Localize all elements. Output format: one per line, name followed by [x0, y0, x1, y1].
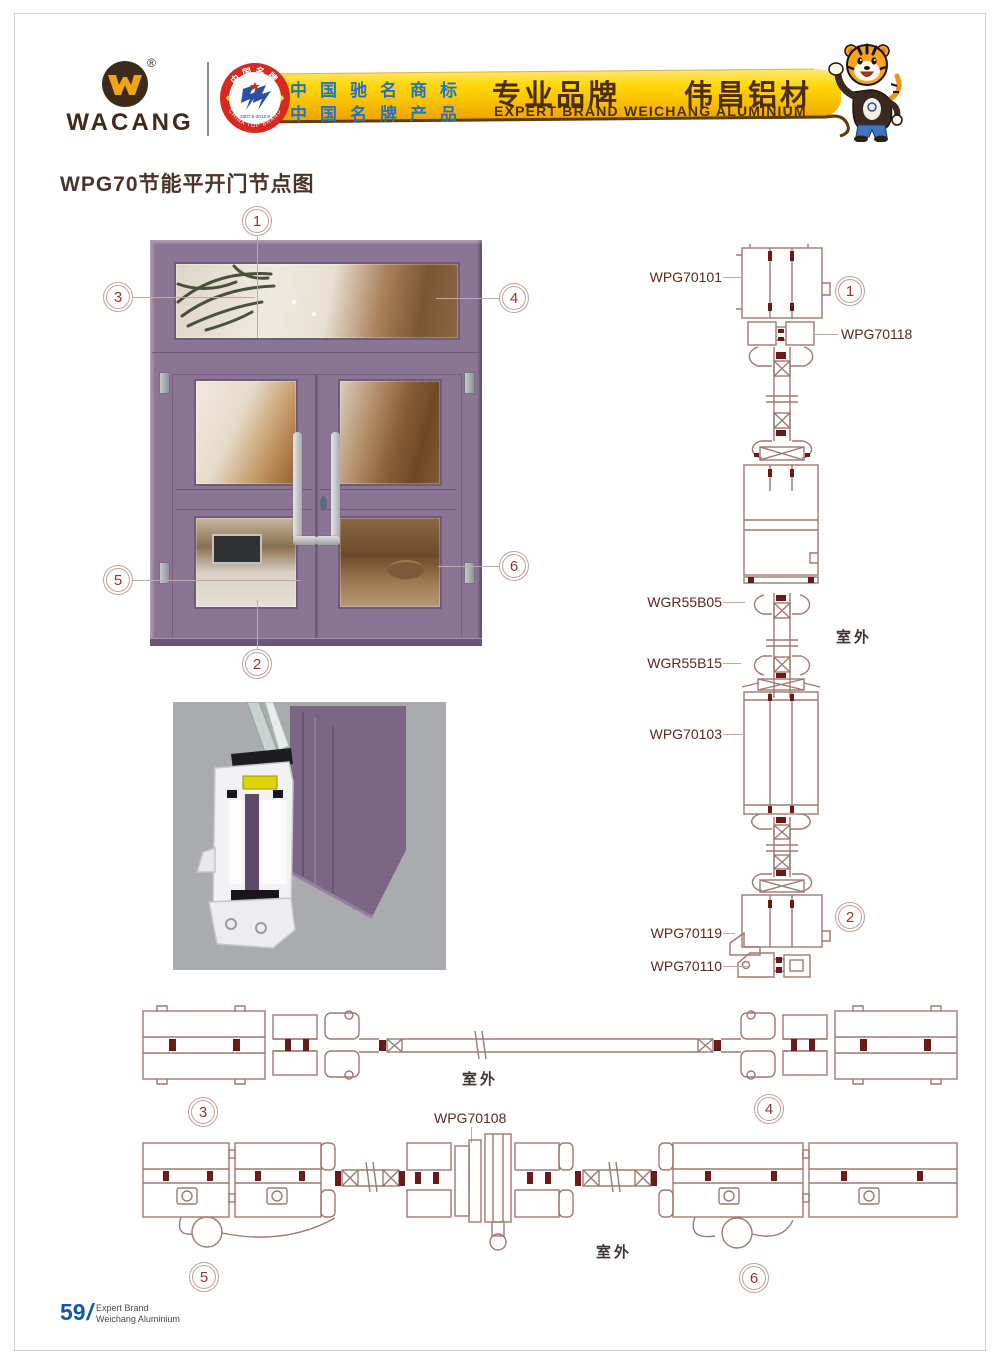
- china-top-brand-badge-icon: 中国名牌 CHINA TOP BRAND 2007.9-2012.9: [219, 62, 291, 134]
- profile-3d-render-drawing: [173, 702, 446, 970]
- label-wgr55b15: WGR55B15: [640, 655, 722, 671]
- callout-4-number: 4: [502, 286, 526, 310]
- callout-6: 6: [499, 551, 529, 581]
- section-callout-4-number: 4: [757, 1097, 781, 1121]
- glass-pane-upper-right: [338, 379, 442, 486]
- registered-mark: ®: [147, 56, 156, 70]
- section-callout-6: 6: [739, 1263, 769, 1293]
- outdoor-label-vertical: 室外: [836, 626, 872, 647]
- door-sill: [150, 638, 482, 646]
- label-wpg70103: WPG70103: [640, 726, 722, 742]
- transom-groove: [152, 352, 480, 353]
- leader-wgr55b15: [723, 663, 741, 664]
- callout-5-number: 5: [106, 568, 130, 592]
- midrail-groove-right: [320, 489, 456, 490]
- outdoor-label-row1: 室外: [462, 1068, 498, 1089]
- door-handle-left-grip: [293, 536, 317, 545]
- page-number-slash: /: [87, 1301, 93, 1323]
- leader-wpg70101: [723, 277, 741, 278]
- callout-1: 1: [242, 206, 272, 236]
- leader-wpg70110: [723, 966, 748, 967]
- label-wpg70110: WPG70110: [640, 958, 722, 974]
- horizontal-section-top-drawing: [135, 1003, 965, 1103]
- midrail-groove-left2: [176, 509, 312, 510]
- banner-cn-line2: 中国名牌产品: [290, 100, 470, 125]
- hinge-top-right: [464, 372, 475, 394]
- palm-leaves-icon: [176, 264, 326, 334]
- section-callout-2-number: 2: [838, 905, 862, 929]
- profile-3d-render: [173, 702, 446, 970]
- leader-wpg70118: [813, 334, 838, 335]
- wacang-logo-icon: [100, 58, 152, 110]
- label-wpg70101: WPG70101: [640, 269, 722, 285]
- leader-line-6: [438, 566, 499, 567]
- leader-wgr55b05: [723, 602, 745, 603]
- catalog-page: ® WACANG 中国名牌 CHINA TOP BRAND 2007.9-201…: [0, 0, 1000, 1366]
- label-wgr55b05: WGR55B05: [640, 594, 722, 610]
- section-callout-1: 1: [835, 276, 865, 306]
- callout-2: 2: [242, 649, 272, 679]
- label-wpg70118: WPG70118: [841, 326, 912, 342]
- vertical-section-drawing: [728, 243, 838, 983]
- section-callout-5-number: 5: [192, 1265, 216, 1289]
- outdoor-label-row2: 室外: [596, 1241, 632, 1262]
- section-callout-2: 2: [835, 902, 865, 932]
- header-divider: [207, 62, 209, 136]
- page-footer: 59 / Expert Brand Weichang Aluminium: [60, 1301, 180, 1324]
- callout-3: 3: [103, 282, 133, 312]
- label-wpg70119: WPG70119: [640, 925, 722, 941]
- section-callout-3-number: 3: [191, 1100, 215, 1124]
- horizontal-section-bottom-drawing: [135, 1130, 965, 1260]
- callout-5: 5: [103, 565, 133, 595]
- callout-3-number: 3: [106, 285, 130, 309]
- page-number: 59: [60, 1301, 86, 1323]
- section-callout-4: 4: [754, 1094, 784, 1124]
- leader-line-5: [133, 580, 300, 581]
- banner-cn-line1: 中国驰名商标: [290, 76, 470, 101]
- brand-name: WACANG: [57, 109, 203, 137]
- banner-sub-slogan: EXPERT BRAND WEICHANG ALUMINIUM: [494, 103, 807, 119]
- midrail-groove-right2: [320, 509, 456, 510]
- badge-years-text: 2007.9-2012.9: [240, 114, 270, 119]
- glass-pane-upper-left: [194, 379, 298, 486]
- label-wpg70108: WPG70108: [434, 1110, 506, 1126]
- footer-line1: Expert Brand: [96, 1303, 180, 1314]
- section-callout-3: 3: [188, 1097, 218, 1127]
- tv-in-scene: [212, 534, 262, 564]
- page-title: WPG70节能平开门节点图: [60, 168, 315, 198]
- table-in-scene: [388, 560, 424, 579]
- glass-pane-lower-right: [338, 516, 442, 609]
- footer-line2: Weichang Aluminium: [96, 1314, 180, 1325]
- callout-6-number: 6: [502, 554, 526, 578]
- leader-wpg70103: [723, 734, 745, 735]
- footer-caption: Expert Brand Weichang Aluminium: [96, 1301, 180, 1324]
- callout-2-number: 2: [245, 652, 269, 676]
- door-handle-right-grip: [316, 536, 340, 545]
- hinge-top-left: [159, 372, 170, 394]
- leader-line-4: [436, 298, 499, 299]
- midrail-groove-left: [176, 489, 312, 490]
- tiger-mascot-icon: [822, 40, 908, 142]
- leader-line-2: [257, 600, 258, 649]
- section-callout-1-number: 1: [838, 279, 862, 303]
- section-callout-6-number: 6: [742, 1266, 766, 1290]
- leader-line-1: [257, 236, 258, 338]
- section-callout-5: 5: [189, 1262, 219, 1292]
- leader-line-3: [133, 297, 255, 298]
- door-handle-left: [293, 432, 302, 544]
- leader-wpg70119: [723, 933, 735, 934]
- keyhole: [320, 496, 327, 511]
- callout-1-number: 1: [245, 209, 269, 233]
- door-handle-right: [331, 432, 340, 544]
- meeting-stile-line: [315, 374, 317, 638]
- callout-4: 4: [499, 283, 529, 313]
